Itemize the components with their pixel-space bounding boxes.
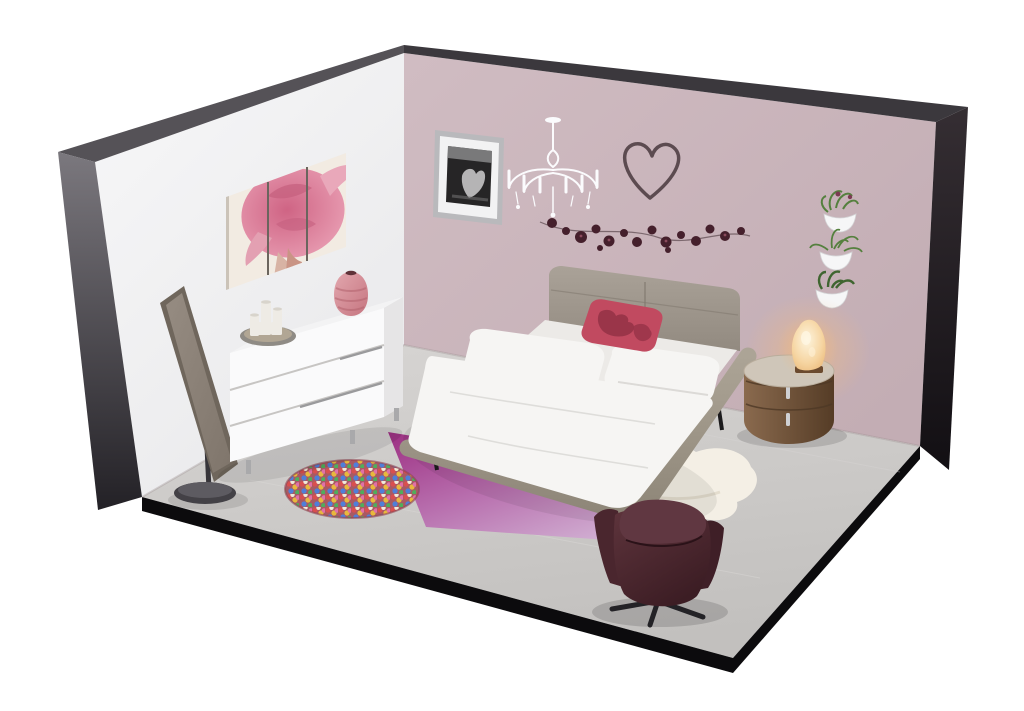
nightstand-handle [786,386,790,399]
chandelier-crystal [586,205,590,209]
flower [562,227,570,235]
flower-center [724,234,727,237]
chandelier-crystal [516,205,520,209]
flower-center [580,235,583,238]
flower-center [665,240,668,243]
framed-photo [433,130,504,225]
triptych-side-edge [226,196,229,290]
chandelier-crystal [551,213,556,218]
salt-lamp-highlight [801,331,811,345]
flower [691,236,701,246]
candle [257,322,265,335]
flower [620,229,628,237]
flower [547,218,557,228]
flower [648,226,657,235]
candle-top [273,307,282,310]
flower [677,231,685,239]
flower [737,227,745,235]
candle [271,322,279,335]
mirror-base-top [178,482,232,498]
dresser-leg [246,460,251,474]
flower-bud [597,245,603,251]
plant-flower [848,195,852,199]
dresser-leg [350,430,355,444]
dresser-side-face [384,297,403,417]
vase-mouth [346,271,357,275]
flower [632,237,642,247]
flower [706,225,715,234]
plant-flower [836,192,841,197]
flower-center [608,239,611,242]
salt-lamp-highlight [809,347,816,357]
nightstand-handle [786,413,790,426]
flower [592,225,601,234]
flower-bud [665,247,671,253]
candle-top [261,300,271,304]
salt-lamp [778,315,838,379]
bedroom-isometric-render [0,0,1024,711]
candle-top [250,313,259,316]
dresser-leg [394,408,399,421]
bedroom-render-stage [0,0,1024,711]
